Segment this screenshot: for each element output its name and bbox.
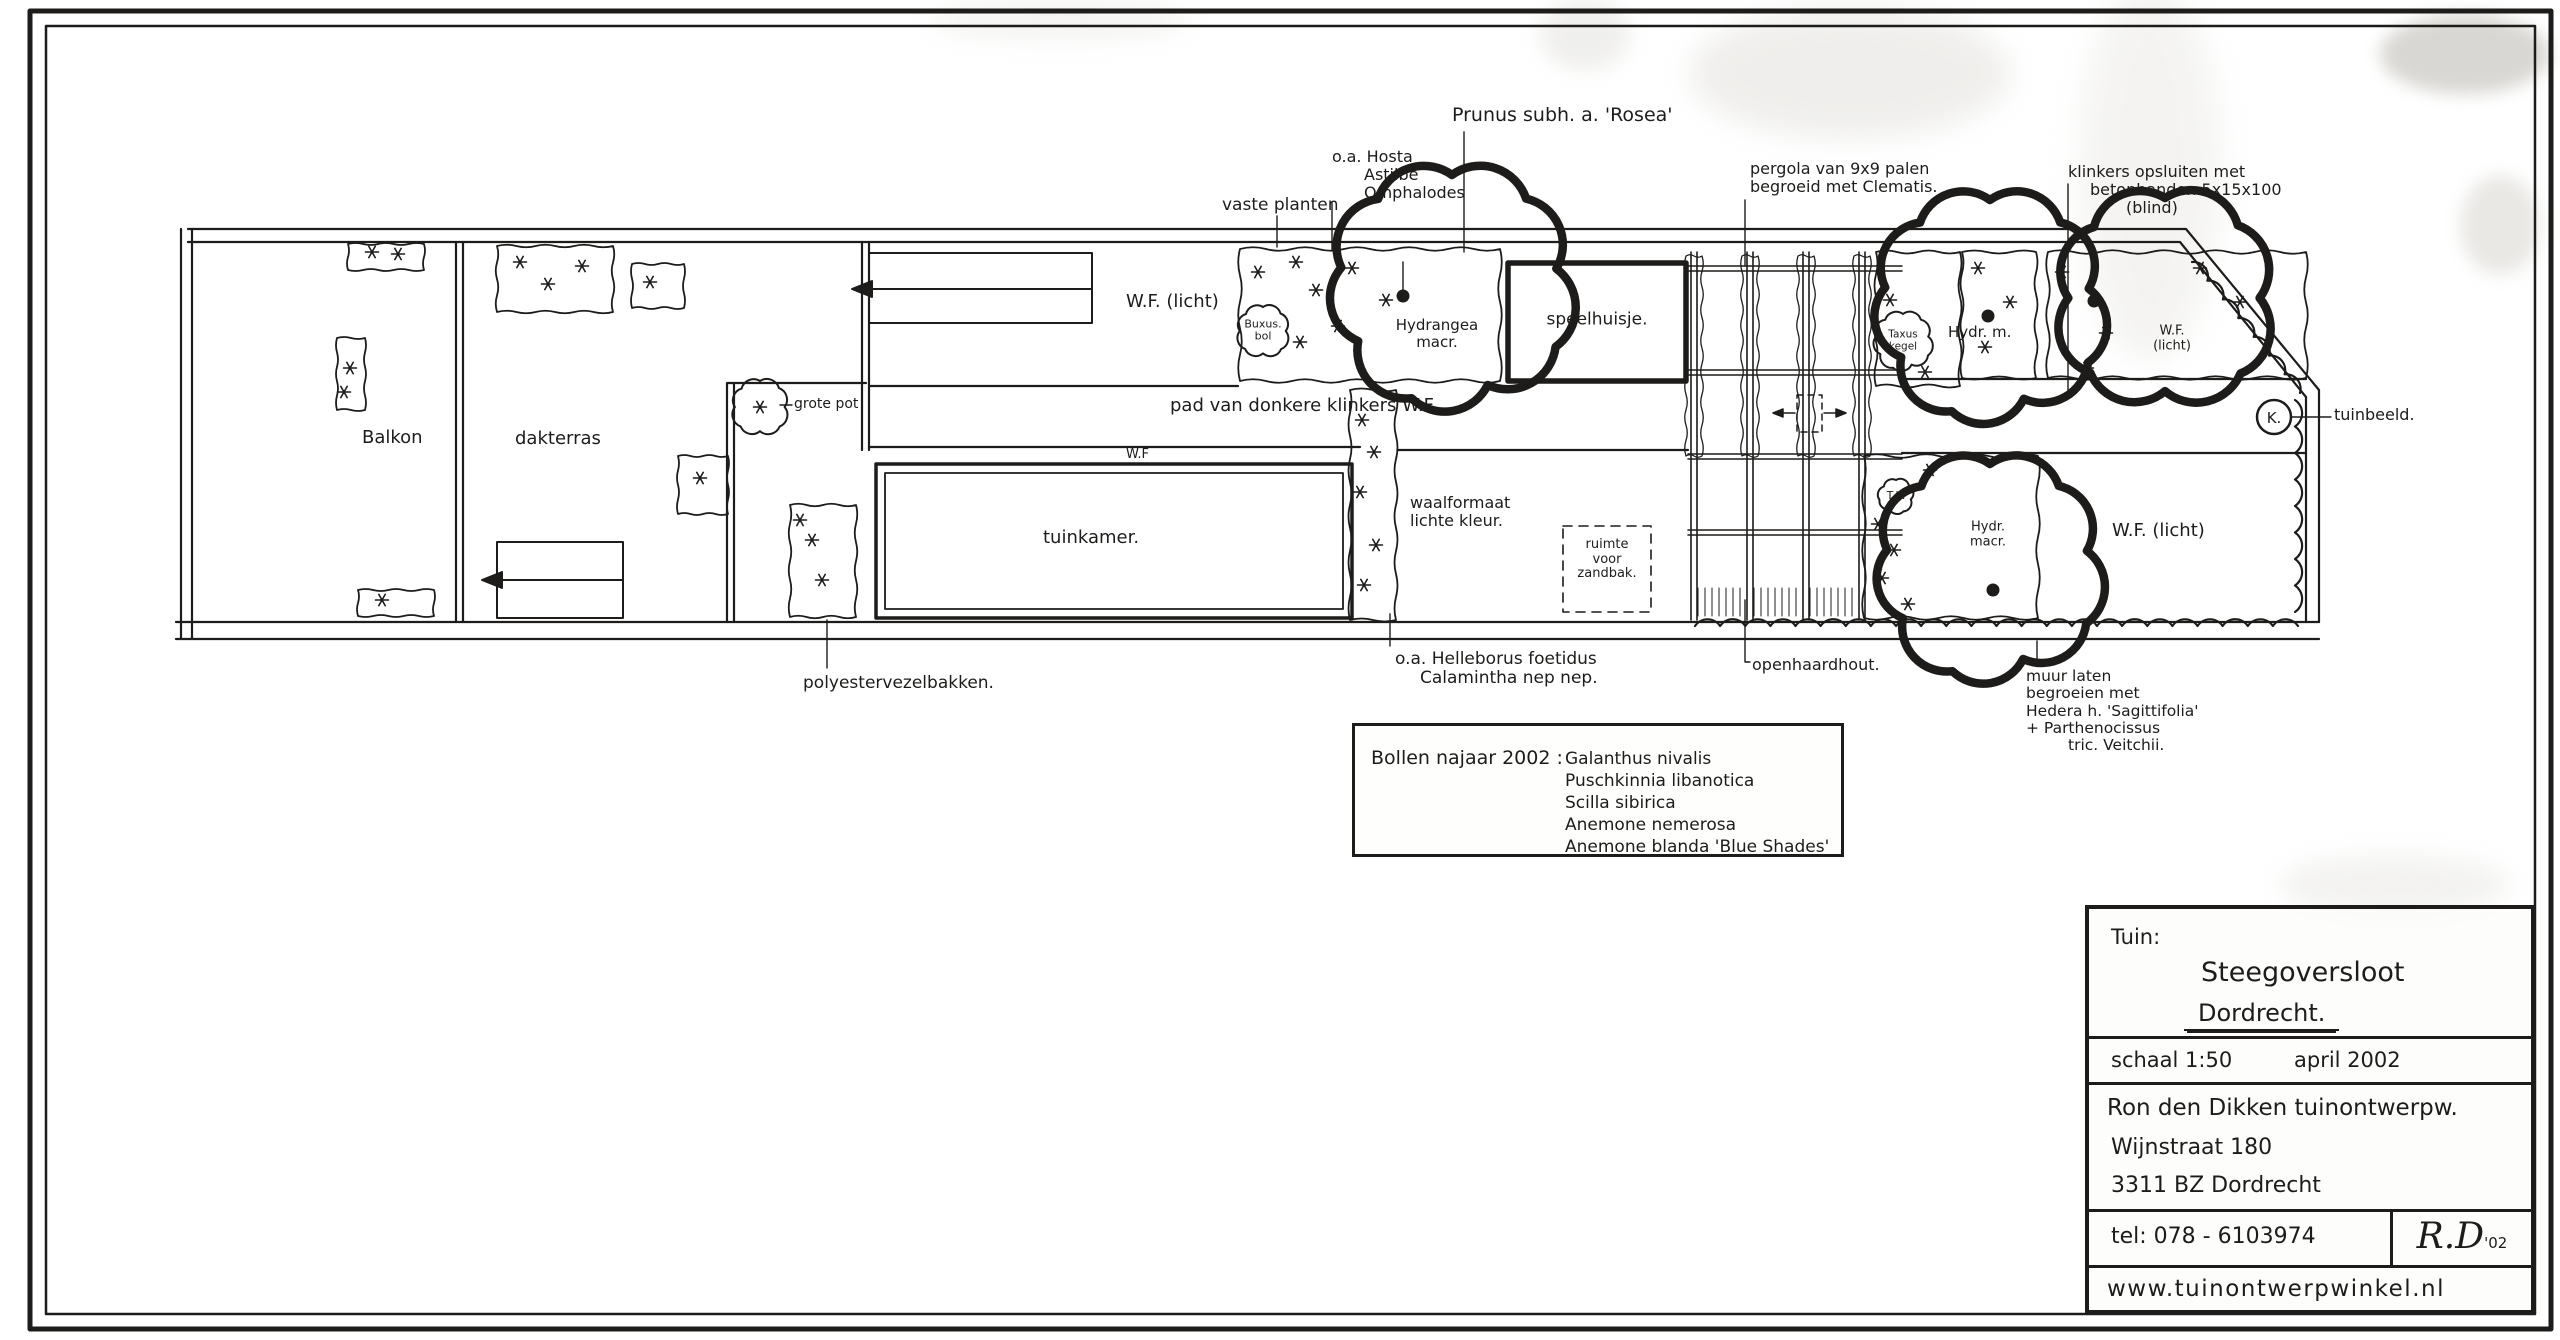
label-wf-licht-right: W.F. (licht) (2112, 521, 2205, 541)
scanned-garden-plan-sheet: K. Prunus subh. a. 'Rosea' o.a. Hosta As… (0, 0, 2560, 1340)
label-waalformaat: waalformaat lichte kleur. (1410, 494, 1510, 530)
label-openhaardhout: openhaardhout. (1752, 656, 1880, 674)
label-tk: T.k. (1887, 490, 1906, 502)
tree-symbols (1330, 166, 2271, 684)
label-buxus-bol: Buxus. bol (1244, 319, 1281, 344)
label-klinkers-line: (blind) (2126, 199, 2282, 217)
legend-item: Anemone blanda 'Blue Shades' (1565, 836, 1829, 858)
legend-item: Puschkinnia libanotica (1565, 770, 1829, 792)
upper-stairs (852, 253, 1092, 323)
label-hydrangea: Hydrangea macr. (1396, 317, 1479, 351)
date-value: april 2002 (2294, 1048, 2401, 1072)
tree-top-right-a (1874, 191, 2107, 424)
label-zandbak: ruimte voor zandbak. (1577, 538, 1636, 582)
designer-street: Wijnstraat 180 (2111, 1135, 2272, 1160)
label-helleborus-group: o.a. Helleborus foetidus Calamintha nep … (1395, 650, 1598, 688)
label-polyester: polyestervezelbakken. (803, 674, 994, 693)
title-row-website: www.tuinontwerpwinkel.nl (2089, 1268, 2531, 1316)
bulb-legend-box: Bollen najaar 2002 : Galanthus nivalis P… (1352, 723, 1844, 857)
designer-postal: 3311 BZ Dordrecht (2111, 1173, 2321, 1198)
label-klinkers-line: klinkers opsluiten met (2068, 163, 2282, 181)
label-wf-licht-small: W.F. (licht) (2153, 324, 2191, 353)
label-klinkers-line: betonbanden 5x15x100 (2090, 181, 2282, 199)
monogram-year: '02 (2484, 1234, 2507, 1252)
prunus-tree (1330, 166, 1576, 412)
label-pergola-line: pergola van 9x9 palen (1750, 160, 1937, 178)
monogram-cell: R.D'02 (2390, 1212, 2531, 1265)
pergola-structure (1688, 252, 1902, 620)
k-marker-label: K. (2267, 409, 2282, 427)
planting-beds (1238, 247, 2308, 621)
label-muur-group: muur laten begroeien met Hedera h. 'Sagi… (2026, 668, 2199, 755)
legend-item: Anemone nemerosa (1565, 814, 1829, 836)
label-hosta-line: Omphalodes (1364, 184, 1465, 202)
label-wf-strip: W.F (1126, 448, 1149, 463)
lower-stairs (482, 542, 623, 618)
title-block: Tuin: Steegoversloot Dordrecht. schaal 1… (2085, 905, 2535, 1314)
label-hosta-line: o.a. Hosta (1332, 148, 1465, 166)
label-taxus-kegel: Taxus kegel (1888, 329, 1917, 353)
label-dakterras: dakterras (515, 429, 601, 449)
legend-item: Scilla sibirica (1565, 792, 1829, 814)
website: www.tuinontwerpwinkel.nl (2107, 1276, 2445, 1302)
title-row-tel: tel: 078 - 6103974 R.D'02 (2089, 1212, 2531, 1268)
legend-item: Galanthus nivalis (1565, 748, 1829, 770)
designer-name: Ron den Dikken tuinontwerpw. (2107, 1095, 2458, 1121)
label-pergola-group: pergola van 9x9 palen begroeid met Clema… (1750, 160, 1937, 196)
label-balkon: Balkon (362, 428, 423, 448)
title-label: Tuin: (2111, 925, 2160, 949)
label-hydr-m: Hydr. m. (1948, 324, 2011, 341)
legend-items: Galanthus nivalis Puschkinnia libanotica… (1565, 748, 1829, 858)
label-wf-licht-left: W.F. (licht) (1126, 292, 1219, 312)
title-row-project: Tuin: Steegoversloot Dordrecht. (2089, 909, 2531, 1039)
tree-bottom-right (1877, 455, 2105, 683)
pergola-climbers (1685, 255, 1872, 458)
legend-heading: Bollen najaar 2002 : (1371, 748, 1563, 769)
title-row-designer: Ron den Dikken tuinontwerpw. Wijnstraat … (2089, 1085, 2531, 1212)
label-pad-klinkers: pad van donkere klinkers W.F. (1170, 396, 1437, 416)
tel-value: tel: 078 - 6103974 (2111, 1224, 2316, 1249)
label-hydr-macr: Hydr. macr. (1970, 520, 2006, 549)
label-pergola-line: begroeid met Clematis. (1750, 178, 1937, 196)
title-row-scale: schaal 1:50 april 2002 (2089, 1039, 2531, 1085)
wall-greenery (1695, 262, 2302, 626)
label-hosta-line: Astilbe (1364, 166, 1465, 184)
label-tuinkamer: tuinkamer. (1043, 528, 1139, 548)
project-name: Steegoversloot (2201, 957, 2405, 988)
firewood-hatching (1698, 588, 1852, 616)
project-city: Dordrecht. (2184, 999, 2339, 1031)
label-klinkers-group: klinkers opsluiten met betonbanden 5x15x… (2068, 163, 2282, 217)
label-prunus: Prunus subh. a. 'Rosea' (1452, 105, 1673, 126)
monogram: R.D (2417, 1216, 2484, 1257)
label-tuinbeeld: tuinbeeld. (2334, 406, 2415, 424)
label-grote-pot: grote pot (794, 397, 858, 413)
label-hosta-group: o.a. Hosta Astilbe Omphalodes (1332, 148, 1465, 202)
label-speelhuisje: speelhuisje. (1546, 310, 1647, 329)
scale-value: schaal 1:50 (2111, 1048, 2232, 1072)
label-vaste-planten: vaste planten (1222, 196, 1338, 215)
